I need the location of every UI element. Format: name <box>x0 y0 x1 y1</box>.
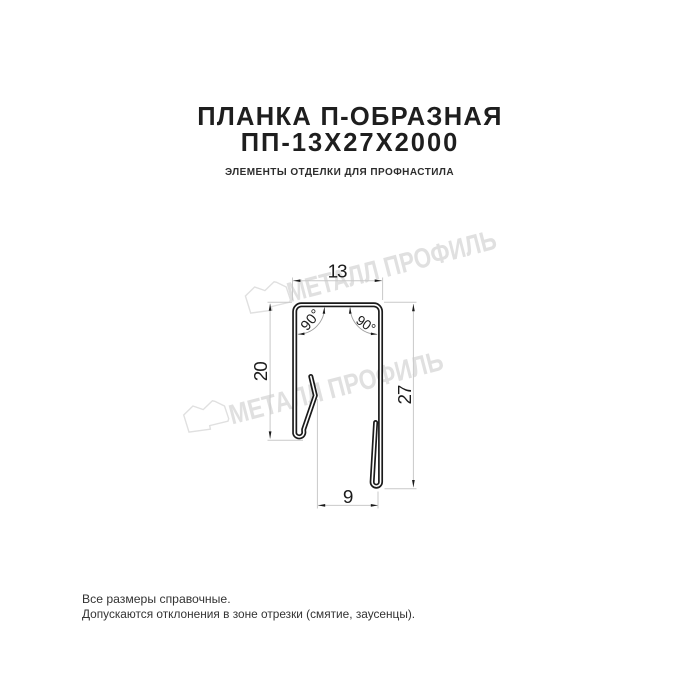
svg-text:90°: 90° <box>298 306 325 334</box>
svg-text:27: 27 <box>395 385 416 404</box>
svg-text:13: 13 <box>328 262 347 283</box>
svg-text:МЕТАЛЛ ПРОФИЛЬ: МЕТАЛЛ ПРОФИЛЬ <box>284 224 500 308</box>
svg-text:9: 9 <box>343 487 354 508</box>
svg-text:90°: 90° <box>353 312 378 336</box>
svg-text:20: 20 <box>251 362 272 381</box>
